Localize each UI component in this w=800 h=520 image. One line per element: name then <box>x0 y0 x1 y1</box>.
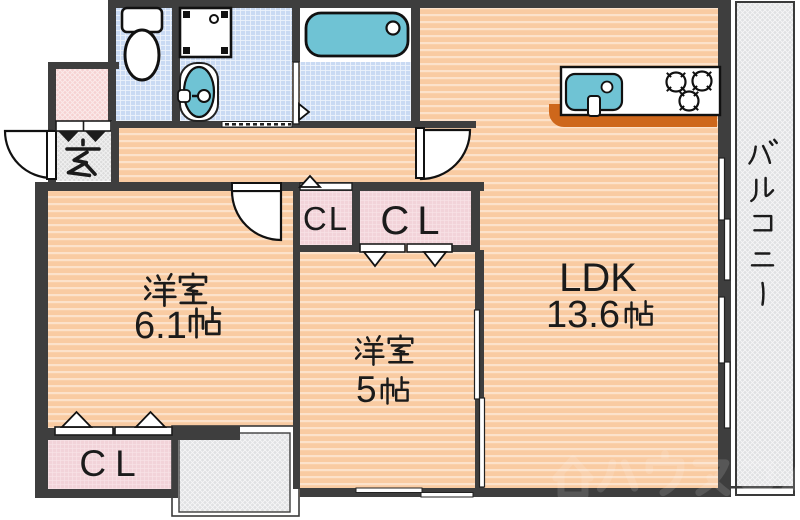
svg-text:CL: CL <box>303 200 349 237</box>
svg-text:13.6: 13.6 <box>546 294 620 336</box>
svg-text:CL: CL <box>79 443 144 484</box>
svg-text:6.1: 6.1 <box>134 305 187 347</box>
svg-text:5: 5 <box>356 369 377 410</box>
svg-text:CL: CL <box>380 199 447 243</box>
